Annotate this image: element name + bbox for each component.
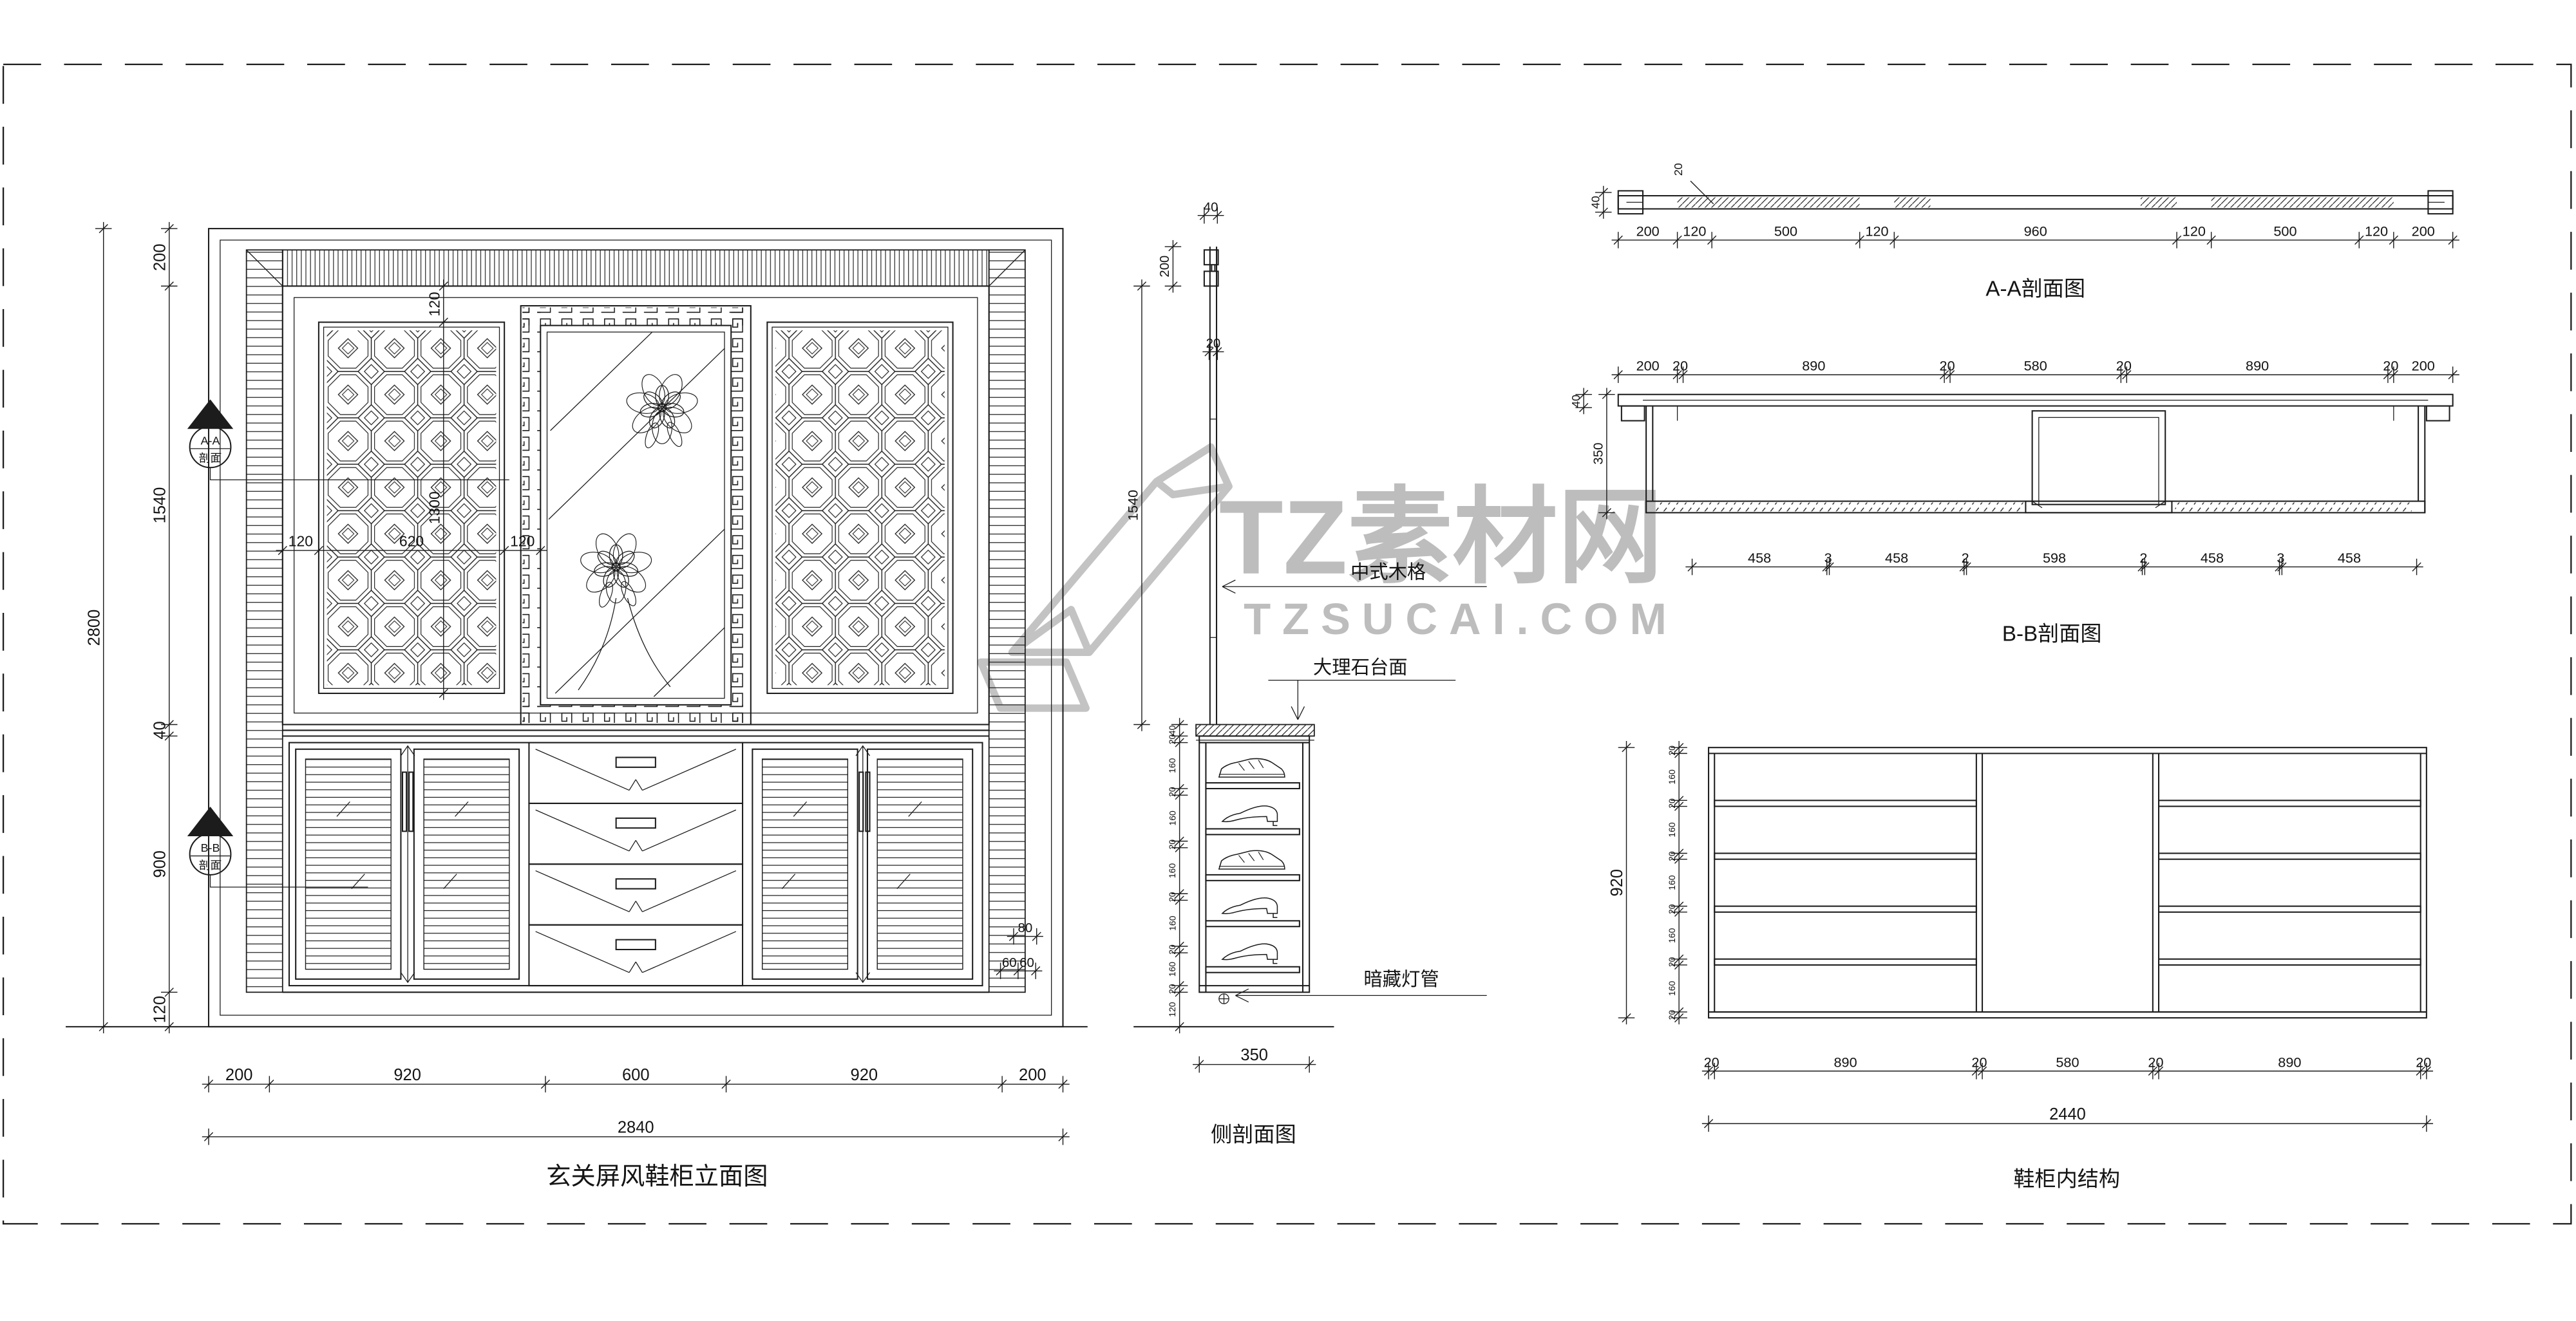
dim-label: 120 xyxy=(1167,1002,1177,1017)
dim-label: 900 xyxy=(151,850,169,878)
watermark-brand: TZ素材网 xyxy=(1219,478,1663,596)
dim-label: 160 xyxy=(1167,962,1177,977)
dim-label: 200 xyxy=(2412,223,2435,239)
elevation-title: 玄关屏风鞋柜立面图 xyxy=(546,1163,768,1190)
dim-label: 500 xyxy=(2273,223,2297,239)
crown-band xyxy=(247,250,1025,286)
dim-label: 40 xyxy=(1589,196,1602,209)
dim-label: 598 xyxy=(2043,550,2066,566)
dim-label: 890 xyxy=(2246,358,2269,374)
dim-label: 160 xyxy=(1667,875,1677,890)
louver-door-left-1[interactable] xyxy=(296,749,401,979)
dim-label: 80 xyxy=(1018,921,1032,935)
dim-label: 20 xyxy=(2148,1054,2163,1070)
side-section-title: 侧剖面图 xyxy=(1211,1123,1296,1147)
dim-label: 160 xyxy=(1667,928,1677,943)
dim-label: 2 xyxy=(2139,550,2147,566)
dim-label: 160 xyxy=(1167,810,1177,826)
dim-label: 200 xyxy=(225,1066,253,1084)
dim-label: 20 xyxy=(2416,1054,2431,1070)
dim-label: 2800 xyxy=(85,610,103,646)
marble-top-label: 大理石台面 xyxy=(1313,657,1408,678)
dim-label: 3 xyxy=(1824,550,1832,566)
louver-door-left-2[interactable] xyxy=(414,749,519,979)
dim-label: 350 xyxy=(1592,443,1606,465)
dim-label: 2440 xyxy=(2049,1105,2086,1123)
dim-label: 200 xyxy=(1636,223,1660,239)
dim-label: 20 xyxy=(1704,1054,1719,1070)
dim-label: 120 xyxy=(510,533,535,550)
dim-label: 620 xyxy=(399,533,424,550)
louver-door-right-2[interactable] xyxy=(867,749,972,979)
left-column xyxy=(247,250,283,992)
louver-door-right-1[interactable] xyxy=(752,749,857,979)
dim-label: 920 xyxy=(851,1066,878,1084)
dim-label: 40 xyxy=(1569,395,1582,408)
section-aa-title: A-A剖面图 xyxy=(1985,277,2085,301)
dim-label: 458 xyxy=(1748,550,1771,566)
dim-label: 500 xyxy=(1774,223,1797,239)
aa-thickness-label: 20 xyxy=(1672,163,1685,176)
dim-label: 200 xyxy=(1019,1066,1046,1084)
dim-label: 160 xyxy=(1667,822,1677,838)
section-bb-title: B-B剖面图 xyxy=(2002,622,2102,646)
right-column xyxy=(989,250,1025,992)
watermark-domain: TZSUCAI.COM xyxy=(1244,594,1678,644)
dim-label: 1540 xyxy=(151,487,169,524)
marker-aa-caption: 剖面 xyxy=(199,451,222,464)
dim-label: 120 xyxy=(1865,223,1888,239)
dim-label: 920 xyxy=(1608,869,1626,897)
dim-label: 120 xyxy=(2183,223,2206,239)
dim-label: 350 xyxy=(1240,1046,1268,1064)
dim-label: 200 xyxy=(2412,358,2435,374)
dim-label: 920 xyxy=(393,1066,421,1084)
dim-label: 20 xyxy=(1206,337,1221,351)
dim-label: 20 xyxy=(1971,1054,1987,1070)
dim-label: 60 xyxy=(1002,956,1017,970)
hidden-light-icon xyxy=(1219,994,1229,1004)
aa-lattice-cut-right xyxy=(2211,197,2394,207)
dim-label: 160 xyxy=(1167,915,1177,931)
lattice-panel-right xyxy=(767,322,952,693)
dim-label: 20 xyxy=(1667,904,1677,914)
dim-label: 20 xyxy=(1167,734,1177,744)
dim-label: 40 xyxy=(1204,200,1218,214)
dim-label: 20 xyxy=(1167,944,1177,955)
dim-label: 20 xyxy=(1167,787,1177,797)
dim-label: 120 xyxy=(1683,223,1706,239)
dim-label: 20 xyxy=(2383,358,2398,374)
dim-label: 3 xyxy=(2277,550,2284,566)
dim-label: 458 xyxy=(2201,550,2224,566)
dim-label: 960 xyxy=(2024,223,2047,239)
dim-label: 120 xyxy=(426,292,442,316)
dim-label: 1540 xyxy=(1125,490,1141,521)
dim-label: 20 xyxy=(1667,1010,1677,1020)
dim-label: 120 xyxy=(151,996,169,1024)
dim-label: 20 xyxy=(1667,957,1677,967)
dim-label: 890 xyxy=(1833,1054,1857,1070)
wood-lattice-label: 中式木格 xyxy=(1350,561,1426,583)
marker-bb-caption: 剖面 xyxy=(199,859,222,872)
dim-label: 2 xyxy=(1962,550,1969,566)
dim-label: 20 xyxy=(1667,745,1677,756)
dim-label: 458 xyxy=(2338,550,2361,566)
drawing-sheet: TZ素材网 TZSUCAI.COM xyxy=(0,0,2576,1321)
dim-label: 160 xyxy=(1667,769,1677,785)
aa-lattice-cut-left xyxy=(1678,197,1860,207)
dim-label: 20 xyxy=(1672,358,1688,374)
dim-label: 20 xyxy=(2116,358,2132,374)
dim-label: 890 xyxy=(2278,1054,2301,1070)
dim-label: 20 xyxy=(1167,892,1177,902)
dim-label: 580 xyxy=(2056,1054,2079,1070)
dim-label: 580 xyxy=(2024,358,2047,374)
dim-label: 20 xyxy=(1167,984,1177,994)
dim-label: 20 xyxy=(1167,839,1177,850)
marker-bb-label: B-B xyxy=(201,841,220,854)
lattice-panel-left xyxy=(319,322,504,693)
dim-label: 20 xyxy=(1940,358,1955,374)
dim-label: 160 xyxy=(1667,981,1677,997)
dim-label: 160 xyxy=(1167,758,1177,773)
dim-label: 200 xyxy=(1636,358,1660,374)
dim-label: 2840 xyxy=(618,1118,654,1136)
dim-label: 200 xyxy=(1158,256,1172,277)
dim-label: 600 xyxy=(622,1066,650,1084)
dim-label: 20 xyxy=(1667,851,1677,861)
cad-canvas: TZ素材网 TZSUCAI.COM xyxy=(0,0,2576,1321)
dim-label: 20 xyxy=(1667,798,1677,809)
dim-label: 40 xyxy=(151,721,169,739)
dim-label: 458 xyxy=(1885,550,1908,566)
dim-label: 120 xyxy=(289,533,313,550)
marble-counter xyxy=(1196,724,1314,736)
dim-label: 1300 xyxy=(426,491,442,524)
marker-aa-label: A-A xyxy=(201,435,220,447)
dim-label: 890 xyxy=(1802,358,1825,374)
dim-label: 60 xyxy=(1019,956,1034,970)
hidden-light-label: 暗藏灯管 xyxy=(1363,969,1439,990)
dim-label: 160 xyxy=(1167,863,1177,879)
internal-title: 鞋柜内结构 xyxy=(2013,1167,2120,1191)
dim-label: 120 xyxy=(2365,223,2388,239)
dim-label: 200 xyxy=(151,243,169,271)
